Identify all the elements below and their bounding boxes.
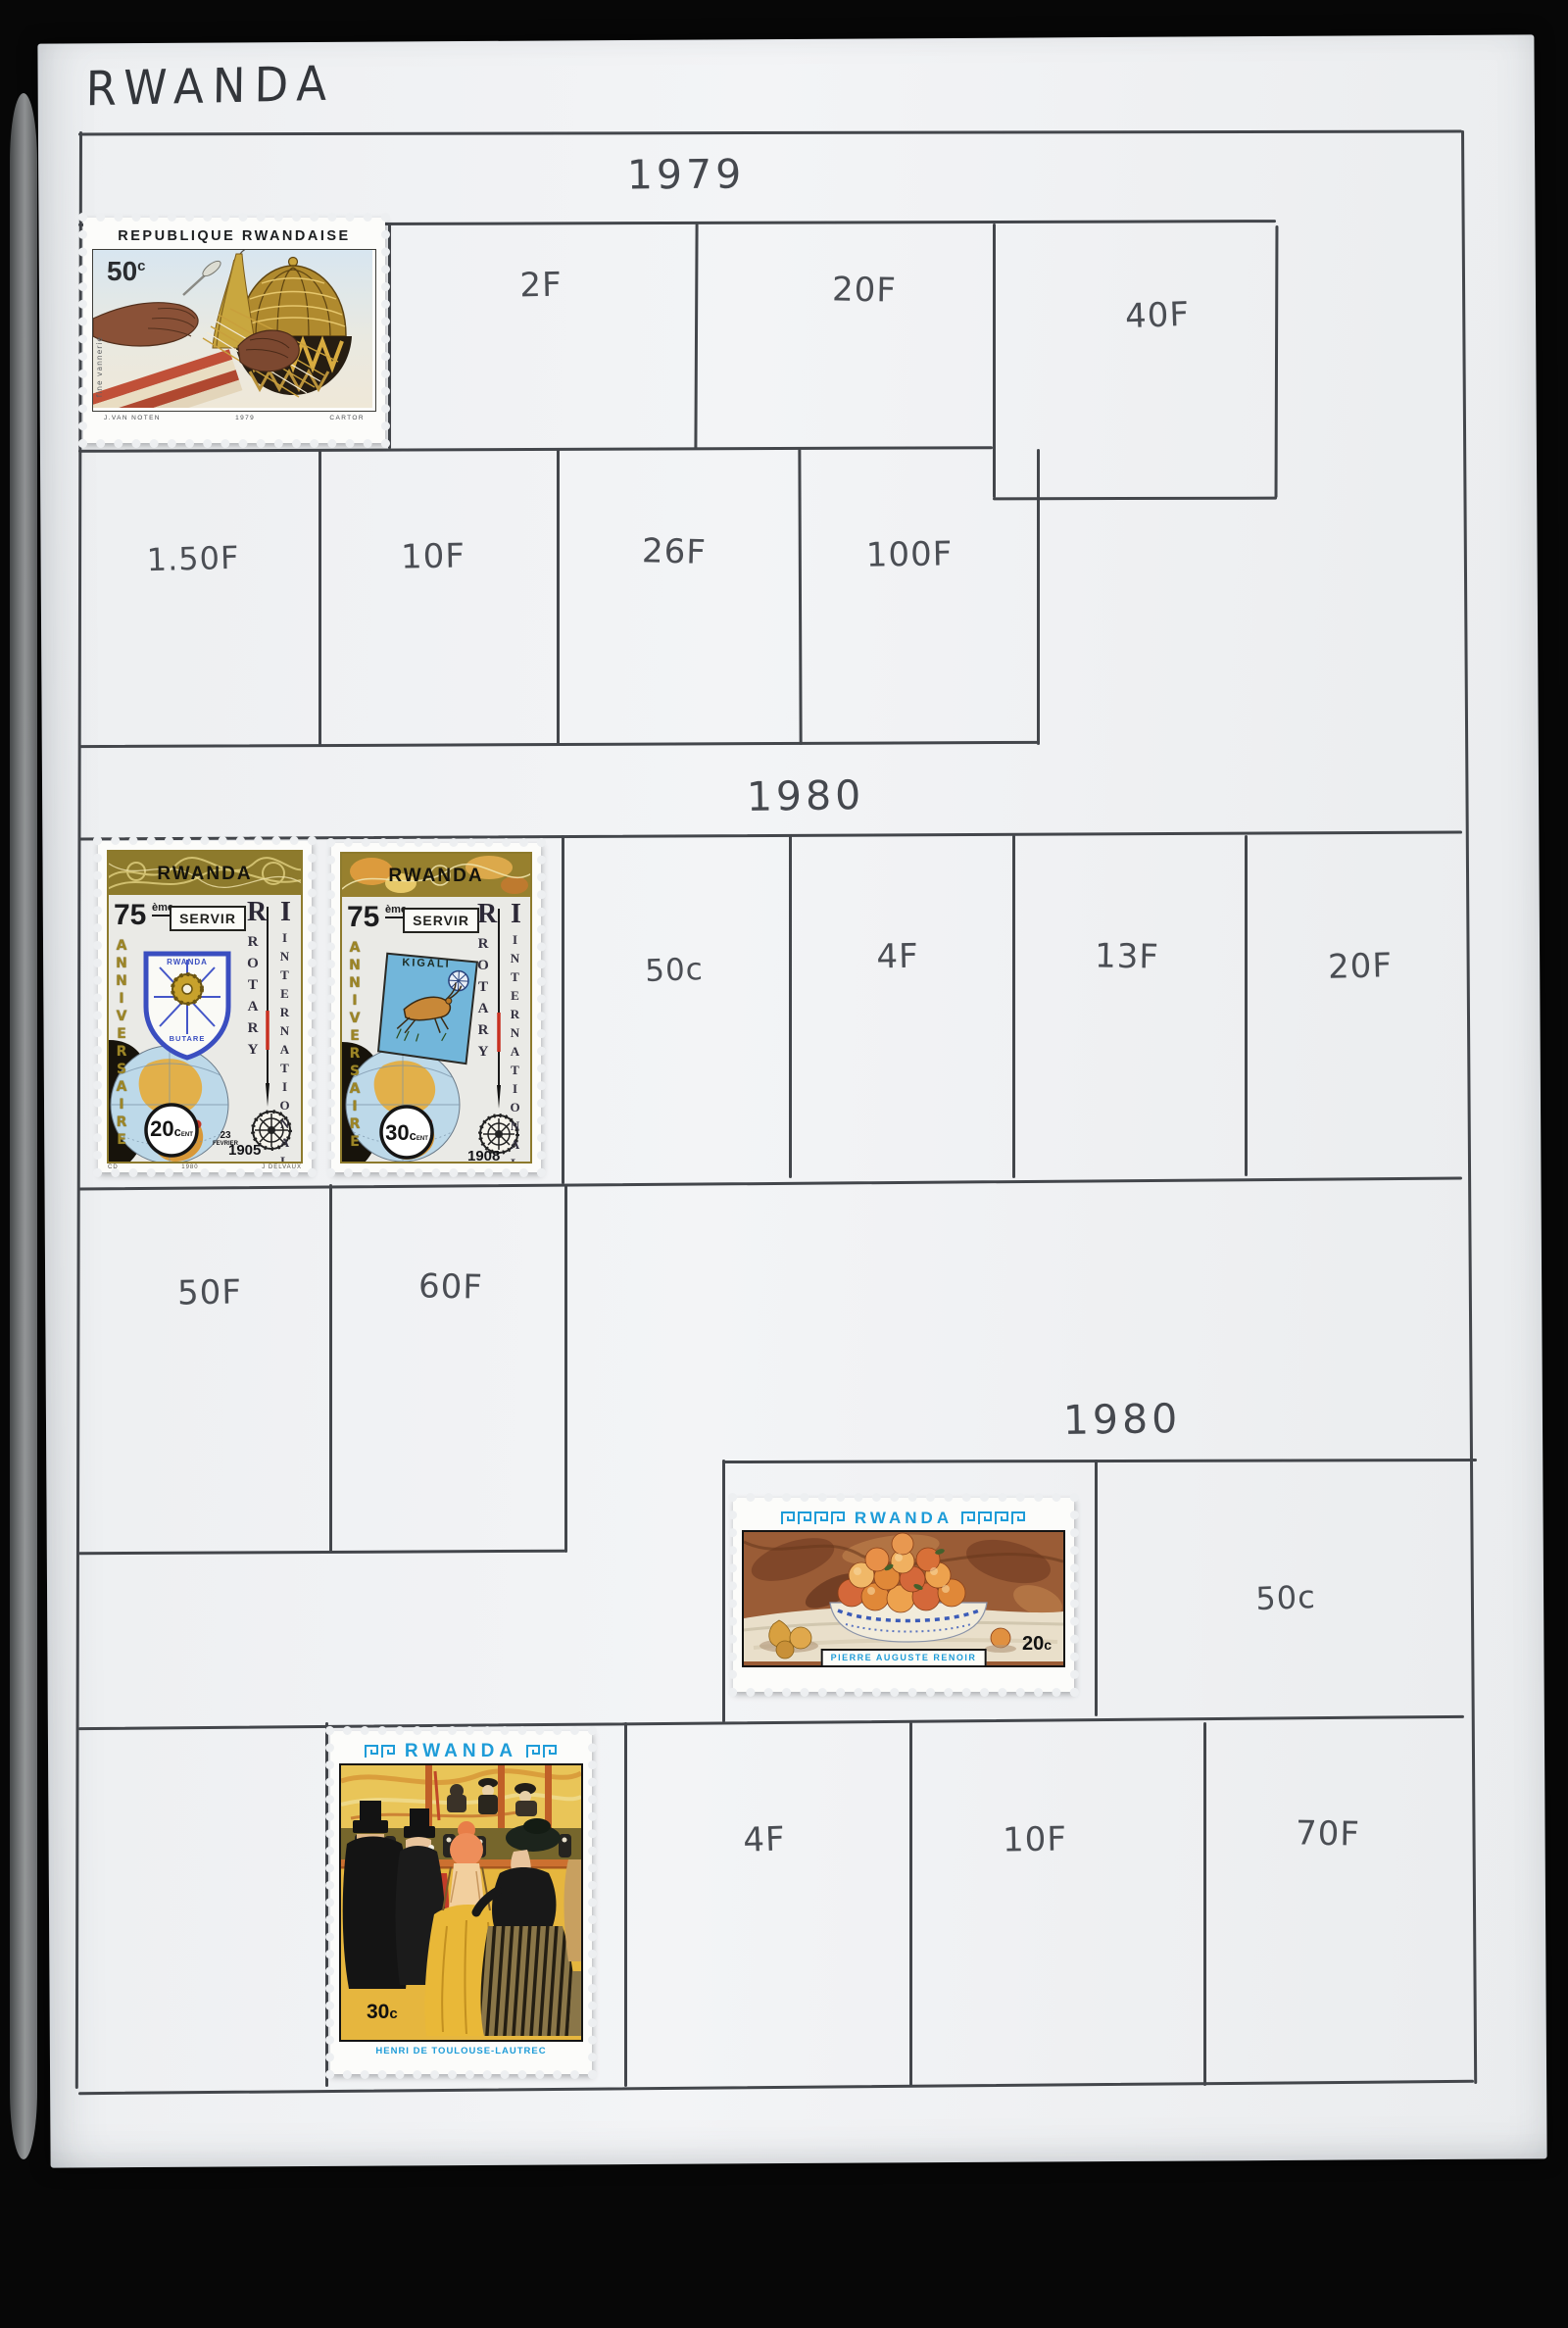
cell-value: 13F (1095, 936, 1160, 976)
stamp-country-text: RWANDA (342, 854, 530, 897)
shield-label-bottom: BUTARE (154, 1034, 220, 1043)
grid-line (1203, 1722, 1206, 2086)
grid-line (564, 1184, 567, 1553)
stamp-country-text: RWANDA (855, 1509, 953, 1528)
grid-line (1037, 449, 1040, 745)
cell-value: 4F (743, 1819, 787, 1859)
vertical-word-rotary: ROTARY (474, 936, 491, 1093)
stamp-artwork: 20c PIERRE AUGUSTE RENOIR (742, 1530, 1065, 1667)
cell-value: 50F (177, 1272, 243, 1313)
cell-value: 2F (519, 266, 563, 306)
grid-line (562, 835, 564, 1184)
cell-value: 20F (832, 270, 898, 310)
panel-label-kigali: KIGALI (393, 957, 460, 970)
grid-line (557, 449, 560, 745)
servir-banner: SERVIR (170, 906, 246, 931)
meander-ornament-left (781, 1511, 846, 1525)
cell-value: 1.50F (146, 539, 240, 578)
servir-banner: SERVIR (403, 908, 479, 933)
grid-line (789, 835, 792, 1178)
stamp-denomination: 20c (1022, 1633, 1052, 1656)
cell-value: 40F (1124, 295, 1190, 336)
moulin-rouge-illustration (341, 1765, 581, 2036)
printer-credit: CARTOR (329, 415, 365, 421)
grid-line (329, 1184, 332, 1553)
cell-value: 26F (642, 531, 708, 572)
vertical-word-anniversaire: ANNIVERSAIRE (347, 940, 363, 1141)
stamp-header: RWANDA (339, 1740, 583, 1763)
rotary-initial-r: R (247, 897, 267, 928)
cell-value: 10F (401, 536, 466, 576)
stamp-rotary-30c: RWANDA (331, 843, 541, 1172)
artist-name-caption: HENRI DE TOULOUSE-LAUTREC (339, 2042, 583, 2061)
gold-ornament-band: RWANDA (342, 854, 530, 897)
vertical-word-international: INTERNATIONAL (507, 932, 522, 1163)
stamp-country-text: RWANDA (405, 1741, 517, 1762)
grid-line (1012, 835, 1015, 1178)
rotary-initial-i: I (511, 899, 521, 930)
grid-line (1245, 835, 1248, 1176)
grid-line (388, 223, 391, 449)
grid-line (318, 449, 321, 745)
stamp-artwork: 50c fine vannerie (92, 249, 376, 412)
stamp-header: RWANDA (742, 1507, 1065, 1530)
stamp-denomination: 30cENT (381, 1120, 432, 1146)
rotary-emblem-illustration (109, 895, 303, 1164)
designer-credit: J.VAN NOTEN (104, 415, 161, 421)
issue-year: 1979 (235, 415, 255, 421)
scanned-album-photo: { "album": { "country": "RWANDA", "year_… (0, 0, 1568, 2328)
stamp-imprint-line: CD 1980 J DELVAUX (108, 1164, 302, 1170)
stamp-lautrec-30c: RWANDA (330, 1731, 592, 2074)
stamp-artwork: RWANDA (107, 850, 303, 1164)
grid-line (1095, 1460, 1098, 1716)
country-title: RWANDA (85, 55, 335, 117)
stamp-country-text: REPUBLIQUE RWANDAISE (92, 226, 376, 249)
year-header-1979: 1979 (627, 150, 746, 198)
meander-ornament-left (365, 1745, 396, 1758)
rotary-initial-r: R (477, 899, 497, 930)
stamp-country-text: RWANDA (109, 852, 301, 895)
cell-value: 50c (1255, 1578, 1317, 1617)
stamp-denomination: 50c (107, 256, 146, 287)
rotary-initial-i: I (280, 897, 291, 928)
grid-line (909, 1722, 912, 2087)
grid-line (325, 1722, 328, 2087)
stamp-denomination: 30c (367, 2001, 398, 2024)
stamp-imprint-line: J.VAN NOTEN 1979 CARTOR (92, 412, 376, 421)
meander-ornament-right (526, 1745, 558, 1758)
grid-line (993, 223, 996, 498)
cell-value: 100F (865, 534, 953, 575)
anniversary-number: 75 (114, 899, 146, 932)
rotary-impala-illustration (342, 897, 532, 1164)
founding-year: 1905 (228, 1142, 261, 1159)
stamp-renoir-20c: RWANDA (733, 1498, 1074, 1692)
cell-value: 50c (645, 952, 705, 989)
cell-value: 20F (1328, 946, 1394, 987)
vertical-word-international: INTERNATIONAL (276, 930, 292, 1161)
vertical-word-anniversaire: ANNIVERSAIRE (114, 938, 129, 1139)
renoir-still-life-illustration (744, 1532, 1063, 1661)
stamp-side-caption: fine vannerie (95, 336, 104, 397)
cell-value: 70F (1296, 1813, 1361, 1854)
shield-label-top: RWANDA (154, 958, 220, 966)
stamp-artwork: RWANDA (340, 852, 532, 1164)
cell-value: 60F (418, 1266, 484, 1307)
page-stack-edge (10, 93, 37, 2159)
grid-line (722, 1460, 725, 1722)
stamp-vannerie-50c: REPUBLIQUE RWANDAISE (83, 218, 385, 443)
anniversary-number: 75 (347, 901, 379, 934)
cell-value: 4F (876, 937, 919, 977)
artist-name-tab: PIERRE AUGUSTE RENOIR (821, 1649, 987, 1667)
stamp-artwork: 30c (339, 1763, 583, 2042)
founding-year: 1908 (467, 1148, 500, 1164)
stamp-denomination: 20cENT (146, 1116, 197, 1142)
gold-ornament-band: RWANDA (109, 852, 301, 895)
grid-line (624, 1722, 627, 2087)
cell-value: 10F (1003, 1819, 1068, 1859)
vertical-word-rotary: ROTARY (244, 934, 261, 1091)
year-header-1980-first: 1980 (746, 771, 864, 820)
meander-ornament-right (961, 1511, 1026, 1525)
stamp-rotary-20c: RWANDA (98, 841, 312, 1172)
year-header-1980-second: 1980 (1062, 1395, 1181, 1444)
